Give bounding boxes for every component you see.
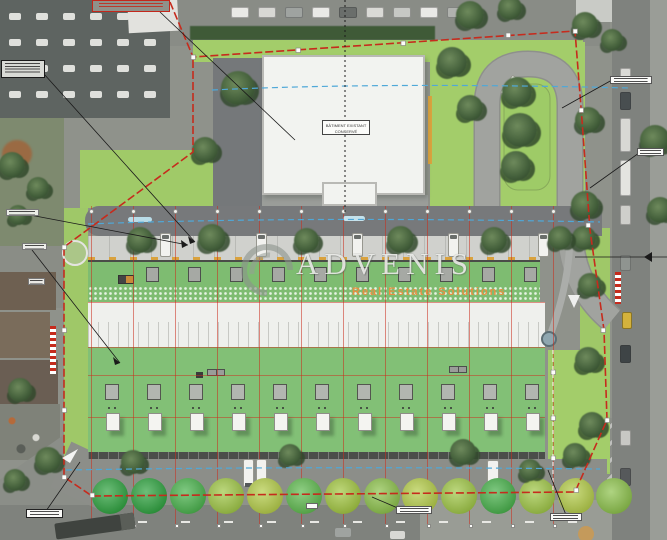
label-bottom-center xyxy=(396,506,432,514)
watermark-tagline: Real Estate Solutions xyxy=(352,286,506,298)
label-tiny-marker xyxy=(306,503,318,509)
label-left-1 xyxy=(6,209,39,216)
existing-building-label-line2: CONSERVÉ xyxy=(323,129,369,134)
label-right-2 xyxy=(637,148,664,156)
advenis-swirl-logo-icon xyxy=(240,242,296,302)
label-left-2 xyxy=(22,243,47,250)
label-right-1 xyxy=(610,76,652,84)
existing-building-label: BÂTIMENT EXISTANT CONSERVÉ xyxy=(322,120,370,135)
label-bottom-left xyxy=(26,509,63,518)
label-box-red xyxy=(92,0,170,12)
site-plan-canvas: BÂTIMENT EXISTANT CONSERVÉ xyxy=(0,0,667,540)
watermark-brand: ADVENIS xyxy=(296,246,474,282)
label-box-left xyxy=(1,60,45,78)
label-left-3 xyxy=(28,278,45,285)
existing-building-label-line1: BÂTIMENT EXISTANT xyxy=(323,123,369,128)
label-bottom-right xyxy=(550,513,582,521)
watermark: ADVENIS Real Estate Solutions xyxy=(240,238,510,308)
